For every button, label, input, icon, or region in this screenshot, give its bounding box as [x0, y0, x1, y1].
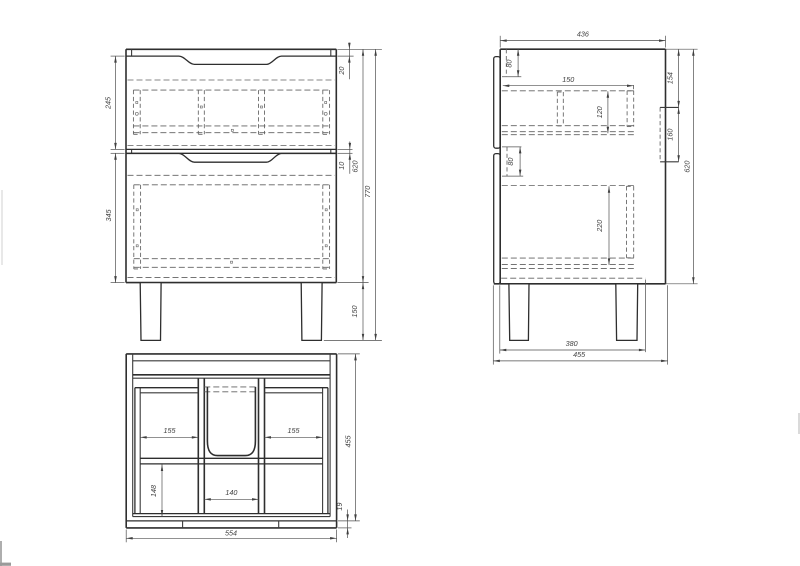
svg-text:150: 150	[350, 306, 359, 318]
svg-text:10: 10	[337, 162, 346, 170]
svg-text:620: 620	[351, 161, 360, 173]
svg-text:155: 155	[164, 426, 177, 435]
svg-text:245: 245	[103, 96, 112, 110]
svg-text:770: 770	[363, 186, 372, 198]
svg-text:436: 436	[577, 29, 589, 38]
svg-text:455: 455	[343, 435, 352, 448]
svg-text:160: 160	[666, 129, 675, 141]
svg-text:220: 220	[595, 220, 604, 233]
svg-text:620: 620	[682, 161, 691, 173]
svg-text:380: 380	[566, 339, 578, 348]
svg-text:155: 155	[288, 426, 301, 435]
svg-text:154: 154	[666, 72, 675, 84]
svg-text:80: 80	[504, 60, 513, 68]
svg-text:554: 554	[225, 529, 237, 538]
svg-text:148: 148	[149, 485, 158, 497]
svg-text:80: 80	[506, 158, 515, 166]
svg-text:455: 455	[573, 350, 586, 359]
svg-text:140: 140	[225, 488, 237, 497]
svg-text:19: 19	[335, 503, 344, 511]
svg-text:345: 345	[104, 209, 113, 222]
svg-text:120: 120	[595, 106, 604, 118]
svg-text:20: 20	[337, 67, 346, 76]
svg-text:150: 150	[562, 75, 574, 84]
